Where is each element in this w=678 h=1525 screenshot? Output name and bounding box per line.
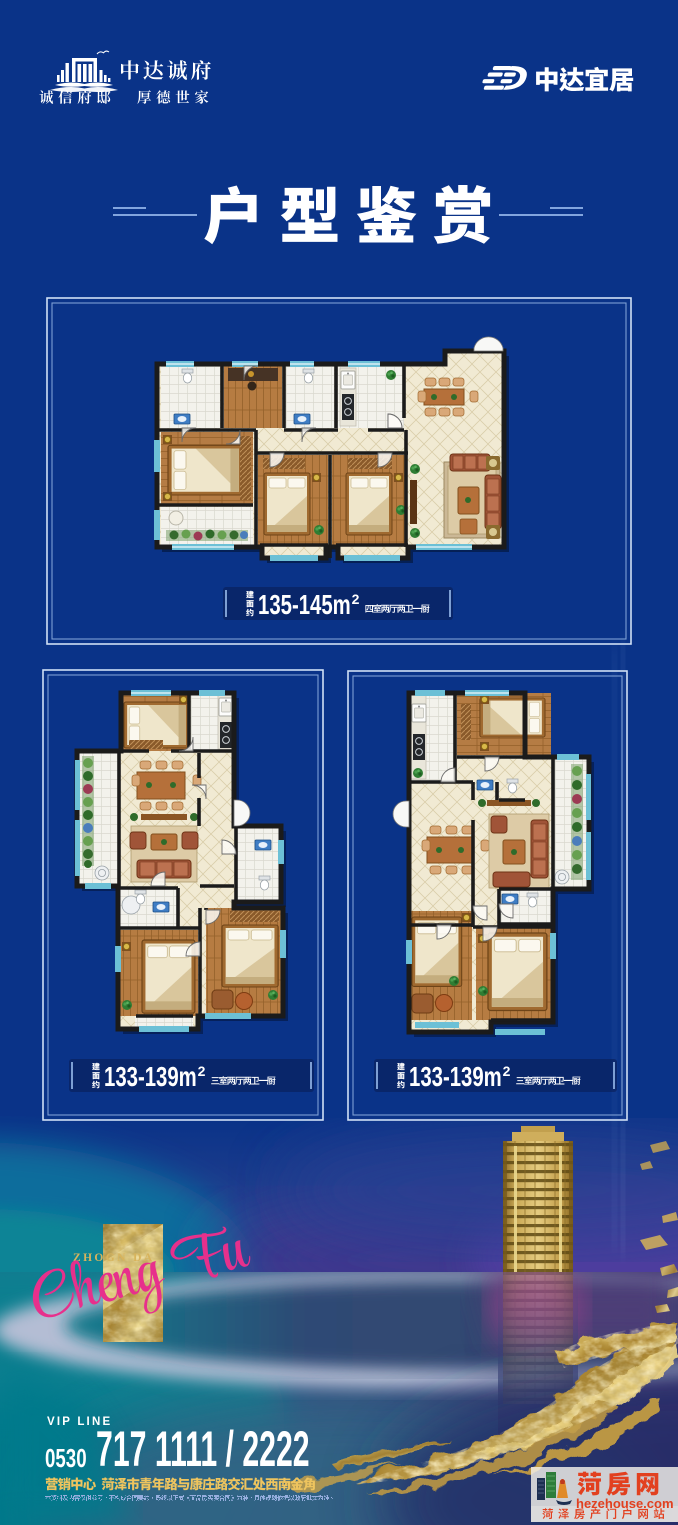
svg-text:2: 2 bbox=[198, 1063, 206, 1079]
svg-text:717 1111 / 2222: 717 1111 / 2222 bbox=[96, 1421, 310, 1477]
svg-text:2: 2 bbox=[503, 1063, 511, 1079]
svg-text:133-139m: 133-139m bbox=[409, 1062, 502, 1093]
svg-text:2: 2 bbox=[352, 591, 360, 607]
svg-text:135-145m: 135-145m bbox=[258, 590, 351, 621]
svg-text:0530: 0530 bbox=[45, 1443, 87, 1473]
svg-text:hezehouse.com: hezehouse.com bbox=[576, 1496, 674, 1511]
svg-text:133-139m: 133-139m bbox=[104, 1062, 197, 1093]
svg-text:ZHOGN DA: ZHOGN DA bbox=[73, 1252, 155, 1264]
